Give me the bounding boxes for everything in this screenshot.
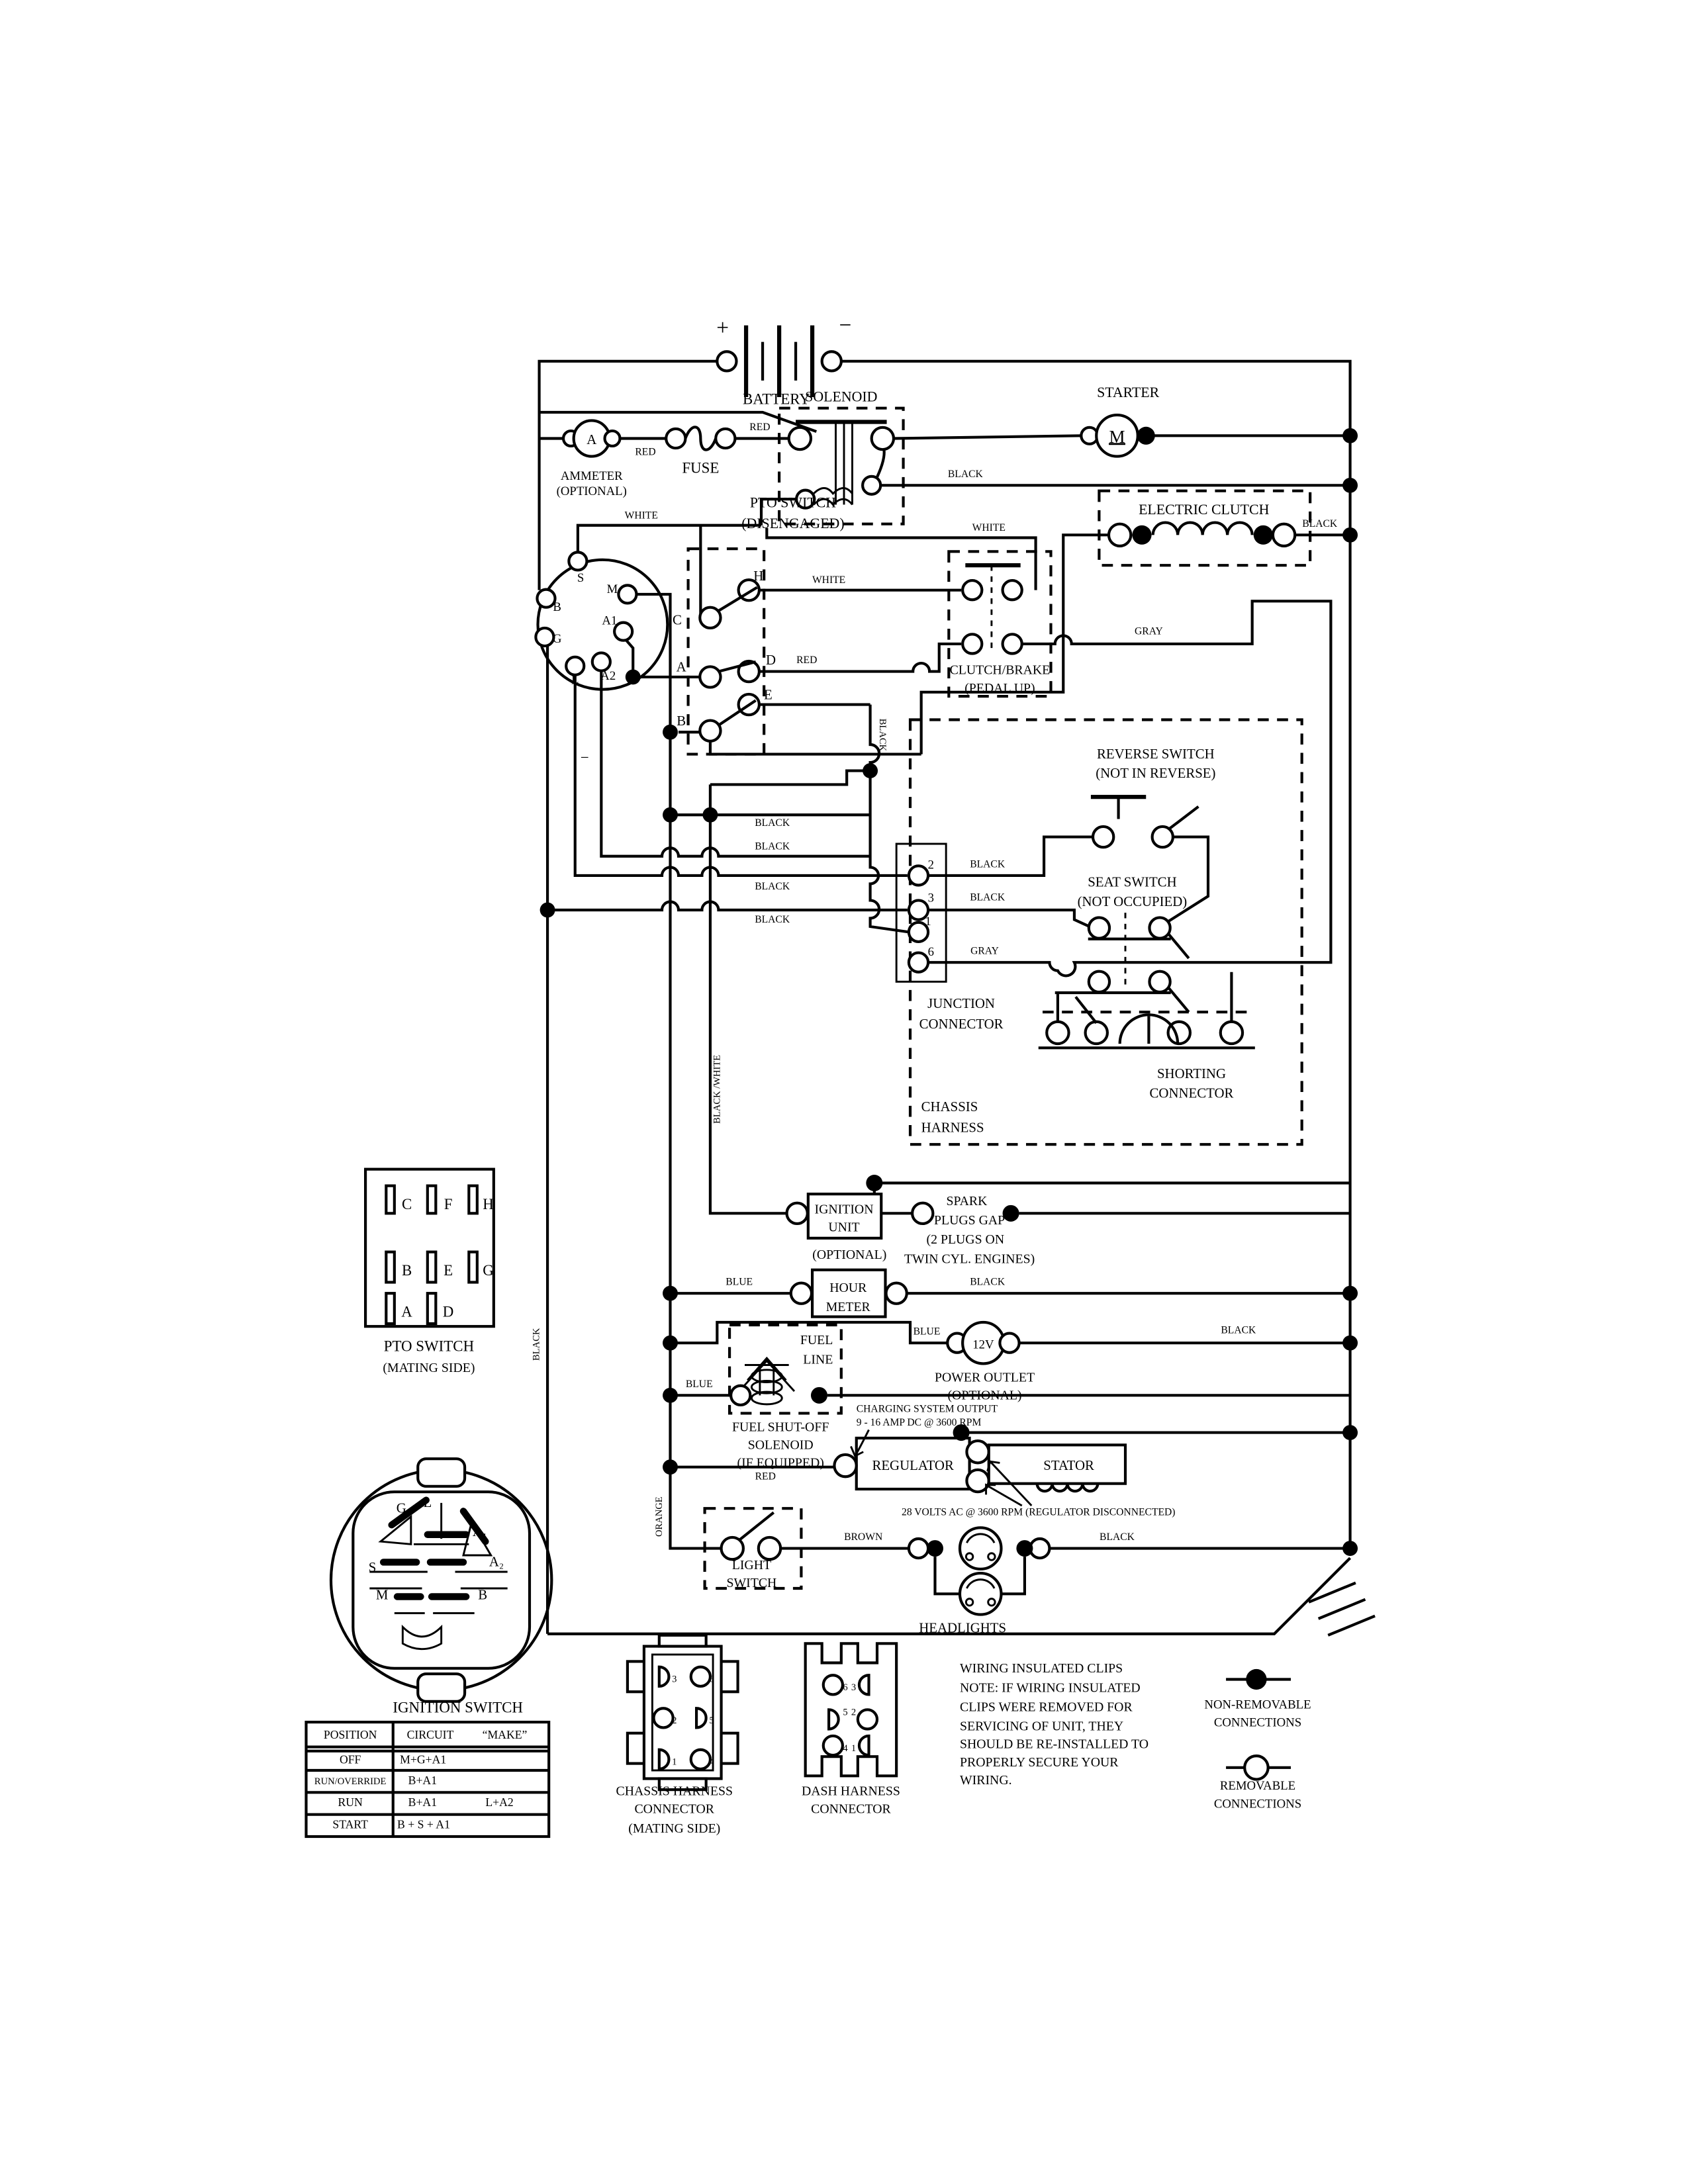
- fuel-shutoff-1: FUEL SHUT-OFF: [732, 1420, 829, 1435]
- spark-2: PLUGS GAP: [934, 1213, 1005, 1228]
- tbl-start-make: B + S + A1: [397, 1818, 450, 1831]
- wire-black-white: BLACK /WHITE: [712, 1055, 723, 1124]
- ignition-switch-connector: [331, 1459, 551, 1702]
- ammeter-label: AMMETER: [561, 469, 623, 483]
- hour-meter-2: METER: [826, 1300, 871, 1314]
- hour-meter-1: HOUR: [829, 1281, 867, 1295]
- pto-mating-h: H: [483, 1196, 494, 1212]
- chc-d3: 3: [672, 1674, 677, 1685]
- ign-a1: A₁: [473, 1524, 487, 1539]
- wire-black-h2: BLACK: [755, 881, 790, 892]
- shorting-2: CONNECTOR: [1150, 1085, 1234, 1101]
- pin-3: 3: [928, 891, 934, 905]
- pto-a: A: [677, 659, 686, 675]
- pto-mating-f: F: [444, 1196, 453, 1212]
- wire-black-clutch: BLACK: [1302, 518, 1338, 529]
- fuse-label: FUSE: [682, 460, 719, 477]
- regulator-label: REGULATOR: [872, 1457, 954, 1473]
- battery-label: BATTERY: [743, 390, 810, 407]
- wire-blue-fuel: BLUE: [686, 1379, 713, 1390]
- ign-s: S: [369, 1559, 377, 1575]
- dhc-3: 3: [851, 1682, 856, 1693]
- wire-gray-1: GRAY: [1135, 625, 1163, 637]
- chc-d5: 5: [709, 1715, 714, 1726]
- pto-mating-d: D: [443, 1304, 454, 1320]
- fuel-2: LINE: [803, 1352, 833, 1367]
- pto-title-1: PTO SWITCH: [750, 495, 836, 511]
- legend-r-1: REMOVABLE: [1220, 1779, 1295, 1793]
- chc-d1: 1: [672, 1757, 677, 1768]
- wire-black-12v: BLACK: [1221, 1325, 1256, 1336]
- ignition-switch-top: S B M G A1 L A2: [536, 552, 667, 689]
- wire-black-solenoid: BLACK: [948, 469, 984, 480]
- legend-nr-1: NON-REMOVABLE: [1204, 1698, 1311, 1711]
- chc-o2: 2: [672, 1715, 677, 1726]
- starter-m: M: [1109, 427, 1125, 447]
- battery: [717, 326, 841, 397]
- ignition-switch-label: IGNITION SWITCH: [393, 1700, 523, 1716]
- tbl-start: START: [332, 1818, 368, 1831]
- tbl-runov-make: B+A1: [408, 1774, 437, 1787]
- pto-mating-2: (MATING SIDE): [383, 1361, 475, 1375]
- dhc-2b: 2: [851, 1707, 856, 1718]
- tbl-run-make: B+A1: [408, 1796, 437, 1809]
- chc-3: (MATING SIDE): [628, 1821, 720, 1836]
- wire-orange: ORANGE: [654, 1496, 665, 1537]
- tbl-run-make2: L+A2: [485, 1796, 513, 1809]
- light-switch-2: SWITCH: [727, 1576, 777, 1590]
- dhc-5: 5: [843, 1707, 847, 1718]
- headlights-label: HEADLIGHTS: [919, 1620, 1006, 1636]
- shorting-connector: [1039, 972, 1255, 1048]
- wire-black-hl: BLACK: [1100, 1531, 1135, 1543]
- dhc-1b: 1: [851, 1743, 856, 1754]
- junction-label-2: CONNECTOR: [919, 1016, 1004, 1032]
- tbl-run: RUN: [338, 1796, 363, 1809]
- ignition-unit-1: IGNITION: [815, 1202, 874, 1216]
- wire-brown: BROWN: [844, 1531, 882, 1543]
- wiring-diagram: S B M G A1 L A2: [0, 0, 1688, 2184]
- clutch-brake-2: (PEDAL UP): [964, 681, 1035, 696]
- chassis-harness-connector: [628, 1635, 738, 1790]
- pto-mating-e: E: [444, 1262, 453, 1279]
- pto-mating-a: A: [401, 1304, 412, 1320]
- spark-plugs: [912, 1203, 933, 1224]
- legend-nr-2: CONNECTIONS: [1214, 1715, 1301, 1729]
- svg-text:G: G: [553, 632, 562, 646]
- reverse-switch: [1091, 797, 1199, 847]
- note-6: PROPERLY SECURE YOUR: [960, 1755, 1119, 1770]
- ammeter-a: A: [586, 432, 596, 447]
- note-5: SHOULD BE RE-INSTALLED TO: [960, 1737, 1149, 1752]
- fuel-shutoff-3: (IF EQUIPPED): [737, 1456, 824, 1471]
- electric-clutch-label: ELECTRIC CLUTCH: [1139, 502, 1270, 518]
- svg-text:M: M: [607, 582, 618, 596]
- ign-g: G: [397, 1500, 406, 1516]
- tbl-off: OFF: [340, 1753, 361, 1766]
- chc-o6: 6: [709, 1674, 714, 1685]
- pto-b: B: [677, 713, 686, 729]
- wire-white-h: WHITE: [812, 574, 845, 586]
- tbl-off-make: M+G+A1: [400, 1753, 446, 1766]
- wire-red-1: RED: [635, 447, 655, 458]
- legend-r-2: CONNECTIONS: [1214, 1797, 1301, 1811]
- shorting-1: SHORTING: [1157, 1066, 1226, 1081]
- wire-black-h1: BLACK: [755, 841, 790, 852]
- chc-2: CONNECTOR: [634, 1802, 714, 1817]
- light-switch-1: LIGHT: [732, 1558, 771, 1572]
- fuse: [666, 427, 735, 449]
- spark-1: SPARK: [946, 1194, 988, 1208]
- pto-title-2: (DISENGAGED): [741, 516, 844, 531]
- chc-1: CHASSIS HARNESS: [616, 1784, 733, 1799]
- schematic-page: { "document": { "type": "lawn tractor el…: [0, 0, 1688, 2184]
- stator-label: STATOR: [1043, 1457, 1094, 1473]
- pin-1: 1: [925, 915, 931, 929]
- hour-meter-optional: (OPTIONAL): [812, 1248, 886, 1262]
- volts-28: 28 VOLTS AC @ 3600 RPM (REGULATOR DISCON…: [902, 1507, 1175, 1518]
- wire-black-pin3: BLACK: [970, 891, 1006, 903]
- power-outlet-1: POWER OUTLET: [935, 1371, 1035, 1385]
- svg-text:S: S: [577, 571, 584, 585]
- clutch-brake-1: CLUTCH/BRAKE: [950, 663, 1051, 678]
- battery-plus: +: [716, 316, 729, 340]
- pto-mating-c: C: [402, 1196, 412, 1212]
- note-2: NOTE: IF WIRING INSULATED: [960, 1680, 1141, 1695]
- svg-text:L: L: [571, 673, 579, 687]
- ignition-unit-2: UNIT: [828, 1220, 859, 1234]
- spark-3: (2 PLUGS ON: [927, 1232, 1005, 1247]
- power-outlet-2: (OPTIONAL): [947, 1388, 1021, 1403]
- ign-a2: A₂: [489, 1554, 504, 1570]
- pin-2: 2: [928, 858, 934, 872]
- svg-text:A1: A1: [602, 614, 617, 628]
- pto-h: H: [753, 568, 763, 584]
- note-4: SERVICING OF UNIT, THEY: [960, 1719, 1123, 1734]
- wire-black-kill: BLACK: [755, 817, 790, 829]
- wire-gray-pin6: GRAY: [970, 946, 999, 957]
- ign-l: L: [423, 1494, 432, 1510]
- starter-label: STARTER: [1097, 385, 1160, 400]
- pto-c: C: [673, 612, 682, 628]
- fuel-shutoff-2: SOLENOID: [748, 1438, 814, 1453]
- dhc-2: CONNECTOR: [811, 1802, 891, 1817]
- wire-black-hm: BLACK: [970, 1277, 1006, 1288]
- pto-e: E: [764, 686, 773, 702]
- pto-mating-g: G: [483, 1262, 494, 1279]
- seat-switch-1: SEAT SWITCH: [1088, 874, 1176, 890]
- wire-red-2: RED: [749, 422, 770, 433]
- reverse-switch-2: (NOT IN REVERSE): [1096, 765, 1215, 781]
- headlights: [909, 1527, 1050, 1614]
- note-3: CLIPS WERE REMOVED FOR: [960, 1700, 1133, 1714]
- wire-blue-hm: BLUE: [726, 1277, 753, 1288]
- tbl-circuit: CIRCUIT: [407, 1728, 454, 1741]
- battery-minus: −: [839, 313, 852, 338]
- wire-white-s: WHITE: [625, 510, 658, 521]
- wire-blue-12v: BLUE: [914, 1326, 941, 1338]
- seat-switch-2: (NOT OCCUPIED): [1078, 893, 1188, 909]
- dhc-4: 4: [843, 1743, 848, 1754]
- dhc-1: DASH HARNESS: [802, 1784, 900, 1799]
- tbl-runov: RUN/OVERRIDE: [314, 1776, 387, 1787]
- wire-red-reg: RED: [755, 1471, 776, 1482]
- svg-text:B: B: [553, 600, 561, 614]
- pto-mating-1: PTO SWITCH: [384, 1338, 474, 1355]
- charging-2: 9 - 16 AMP DC @ 3600 RPM: [857, 1417, 982, 1428]
- note-7: WIRING.: [960, 1773, 1012, 1788]
- pto-mating-b: B: [402, 1262, 412, 1279]
- chassis-harness-1: CHASSIS: [921, 1099, 978, 1115]
- wire-black-h3: BLACK: [755, 914, 790, 925]
- ign-b: B: [478, 1587, 487, 1603]
- wire-black-e-vert: BLACK: [877, 719, 888, 752]
- svg-text:A2: A2: [600, 669, 616, 683]
- pin-6: 6: [928, 945, 934, 959]
- wire-red-ad: RED: [796, 655, 817, 666]
- spark-4: TWIN CYL. ENGINES): [904, 1251, 1035, 1266]
- solenoid-label: SOLENOID: [805, 388, 877, 404]
- charging-1: CHARGING SYSTEM OUTPUT: [857, 1403, 998, 1414]
- minus-mark: −: [581, 749, 589, 766]
- wire-white-cb: WHITE: [972, 522, 1006, 533]
- stator: [986, 1445, 1125, 1506]
- wire-black-pin2: BLACK: [970, 858, 1006, 870]
- chc-o4: 4: [709, 1757, 714, 1768]
- tbl-make: “MAKE”: [483, 1728, 528, 1741]
- ign-m: M: [376, 1587, 389, 1603]
- chassis-harness-2: HARNESS: [921, 1119, 984, 1135]
- ammeter-optional: (OPTIONAL): [557, 484, 627, 498]
- pto-d: D: [766, 652, 776, 668]
- fuel-1: FUEL: [800, 1333, 833, 1347]
- junction-label-1: JUNCTION: [927, 995, 995, 1011]
- pto-switch-mating: [365, 1169, 494, 1327]
- tbl-position: POSITION: [324, 1728, 377, 1741]
- wire-black-g: BLACK: [532, 1328, 542, 1361]
- reverse-switch-1: REVERSE SWITCH: [1097, 746, 1215, 762]
- label-layer: +−BATTERYSOLENOIDSTARTERMAAMMETER(OPTION…: [314, 313, 1338, 1836]
- note-1: WIRING INSULATED CLIPS: [960, 1661, 1123, 1676]
- outlet-12v: 12V: [972, 1338, 994, 1352]
- dhc-6: 6: [843, 1682, 847, 1693]
